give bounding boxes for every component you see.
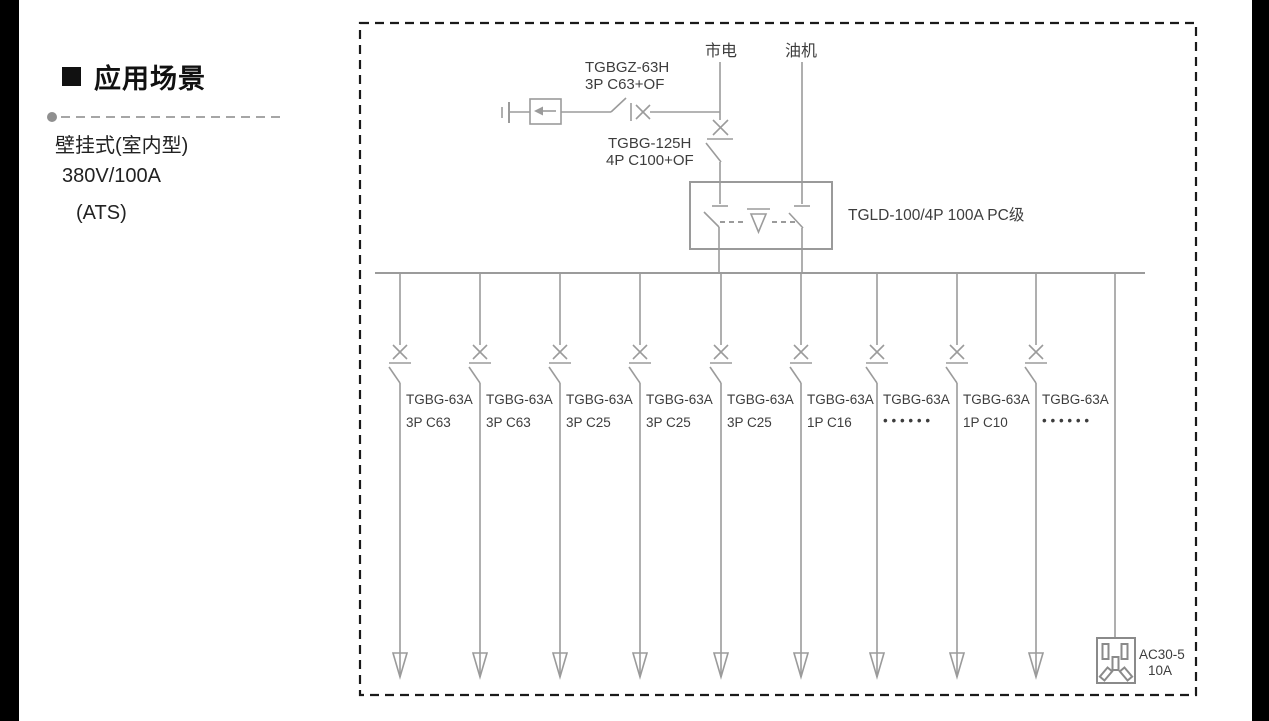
- branch-spec: • • • • • •: [1042, 413, 1089, 428]
- surge-arrester-arrow-icon: [534, 107, 543, 116]
- branch-spec: 3P C63: [406, 415, 451, 430]
- branch-spec: 1P C10: [963, 415, 1008, 430]
- branch-spec: 3P C25: [727, 415, 772, 430]
- ats-left-blade: [704, 212, 719, 227]
- branch-circuit-7: TGBG-63A • • • • • •: [866, 273, 950, 677]
- diagram-dashed-border: [360, 23, 1196, 695]
- branch-model: TGBG-63A: [646, 392, 713, 407]
- generator-label: 油机: [785, 42, 817, 60]
- branch-circuit-9: TGBG-63A • • • • • •: [1025, 273, 1109, 677]
- branch-model: TGBG-63A: [486, 392, 553, 407]
- branch-spec: 1P C16: [807, 415, 852, 430]
- ats-box: [690, 182, 832, 249]
- branch-spec: 3P C25: [646, 415, 691, 430]
- socket-rating: 10A: [1148, 663, 1172, 678]
- socket-branch: AC30-5 10A: [1097, 273, 1185, 683]
- branch-spec: 3P C63: [486, 415, 531, 430]
- mains-label: 市电: [705, 42, 737, 60]
- branch-model: TGBG-63A: [566, 392, 633, 407]
- branch-circuit-5: TGBG-63A 3P C25: [710, 273, 794, 677]
- branch-model: TGBG-63A: [883, 392, 950, 407]
- ats-operator-icon: [751, 214, 766, 232]
- ats-right-blade: [789, 213, 803, 228]
- branch-model: TGBG-63A: [727, 392, 794, 407]
- branch-model: TGBG-63A: [406, 392, 473, 407]
- branch-model: TGBG-63A: [1042, 392, 1109, 407]
- branch-circuit-4: TGBG-63A 3P C25: [629, 273, 713, 677]
- branch-spec: 3P C25: [566, 415, 611, 430]
- main-breaker-spec: 4P C100+OF: [606, 152, 694, 169]
- branch-circuit-2: TGBG-63A 3P C63: [469, 273, 553, 677]
- ats-transfer-switch: [690, 182, 832, 273]
- surge-breaker-blade: [611, 98, 626, 112]
- branch-circuit-3: TGBG-63A 3P C25: [549, 273, 633, 677]
- main-breaker-blade: [706, 143, 721, 162]
- socket-icon: [1097, 638, 1135, 683]
- surge-arrester-branch: [502, 98, 720, 124]
- single-line-diagram: 市电 油机 TGBGZ-63H 3P C63+OF TGBG-125H 4P C…: [0, 0, 1269, 721]
- branch-circuit-6: TGBG-63A 1P C16: [790, 273, 874, 677]
- ats-label: TGLD-100/4P 100A PC级: [848, 206, 1024, 224]
- branch-model: TGBG-63A: [807, 392, 874, 407]
- branch-model: TGBG-63A: [963, 392, 1030, 407]
- main-breaker-model: TGBG-125H: [608, 135, 691, 152]
- surge-breaker-model: TGBGZ-63H: [585, 59, 669, 76]
- surge-breaker-spec: 3P C63+OF: [585, 76, 664, 93]
- branch-spec: • • • • • •: [883, 413, 930, 428]
- branch-circuit-8: TGBG-63A 1P C10: [946, 273, 1030, 677]
- branch-circuit-1: TGBG-63A 3P C63: [389, 273, 473, 677]
- socket-model: AC30-5: [1139, 647, 1185, 662]
